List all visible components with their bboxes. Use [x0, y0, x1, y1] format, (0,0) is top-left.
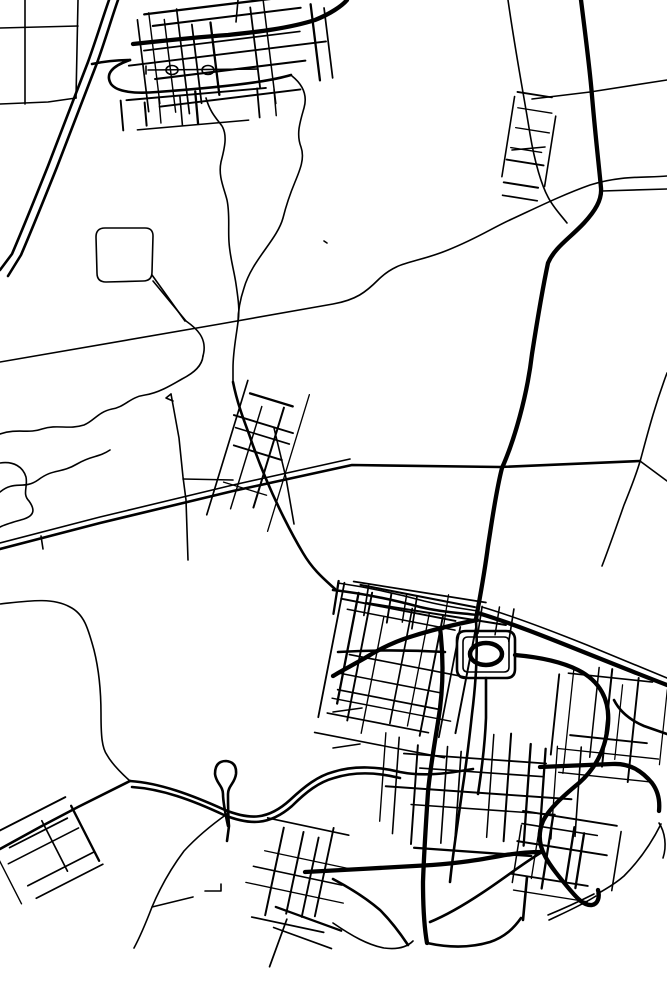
- road-path-med: [233, 382, 335, 589]
- road-path-thin: [333, 744, 360, 748]
- road-path-thin: [152, 275, 185, 321]
- cluster-street: [392, 737, 399, 833]
- road-path-thin: [338, 583, 478, 611]
- cluster-street: [566, 827, 575, 882]
- road-path-thin: [238, 76, 305, 322]
- pond: [470, 643, 502, 665]
- cluster-street: [518, 108, 552, 113]
- cluster-street: [265, 851, 355, 870]
- street-fabric-layer: [0, 0, 667, 986]
- cluster-street: [71, 806, 99, 861]
- cluster-street: [286, 832, 303, 914]
- cluster-street: [121, 101, 124, 131]
- road-path-thin: [0, 98, 76, 104]
- road-path-med: [215, 761, 236, 841]
- road-path-thin: [183, 479, 233, 480]
- cluster-street: [563, 667, 574, 773]
- road-path-med: [338, 651, 445, 653]
- road-path-thin: [532, 80, 667, 99]
- road-path-thin: [0, 450, 110, 492]
- cluster-street: [545, 116, 556, 186]
- street-cluster: [499, 92, 558, 202]
- cluster-street: [318, 583, 344, 717]
- cluster-street: [551, 674, 559, 754]
- cluster-street: [177, 9, 190, 114]
- cluster-street: [327, 713, 428, 733]
- road-path-thick: [423, 628, 442, 943]
- street-cluster: [123, 0, 335, 121]
- cluster-street: [502, 97, 515, 177]
- cluster-street: [575, 833, 584, 888]
- road-path-thin: [148, 69, 258, 70]
- cluster-street: [575, 747, 581, 836]
- road-path-thin: [640, 461, 667, 481]
- map-poster: [0, 0, 667, 1000]
- road-path-med: [0, 461, 640, 549]
- map-canvas: [0, 0, 667, 1000]
- cluster-street: [441, 747, 448, 844]
- road-path-thin: [0, 459, 350, 543]
- road-path-thin: [602, 373, 667, 566]
- cluster-street: [524, 744, 531, 846]
- cluster-street: [270, 919, 287, 966]
- road-path-thin: [134, 814, 227, 948]
- cluster-street: [276, 907, 341, 931]
- road-path-med: [0, 0, 109, 270]
- cluster-street: [411, 745, 418, 844]
- cluster-street: [504, 734, 512, 842]
- cluster-street: [558, 749, 659, 760]
- road-path-thin: [0, 356, 203, 434]
- road-path-thin: [0, 601, 130, 781]
- road-path-thin: [0, 26, 78, 28]
- road-path-med: [333, 879, 408, 945]
- cluster-street: [324, 8, 333, 78]
- cluster-street: [250, 393, 293, 406]
- road-path-med: [478, 678, 486, 794]
- cluster-street: [615, 685, 623, 760]
- cluster-street: [145, 103, 147, 126]
- cluster-street: [559, 772, 651, 782]
- road-path-thin: [602, 189, 667, 191]
- road-path-thin: [324, 241, 327, 243]
- road-path-thin: [597, 824, 661, 894]
- cluster-street: [333, 581, 338, 614]
- road-path-thin: [76, 0, 78, 98]
- cluster-street: [315, 732, 445, 757]
- cluster-street: [503, 195, 538, 200]
- road-path-med: [0, 781, 130, 849]
- road-path-thin: [659, 823, 665, 858]
- cluster-street: [268, 818, 349, 835]
- cluster-street: [507, 160, 544, 166]
- cluster-street: [250, 7, 260, 87]
- cluster-street: [257, 88, 260, 117]
- road-path-med: [614, 700, 667, 734]
- road-path-thin: [333, 708, 362, 712]
- road-path-thin: [152, 897, 193, 907]
- cluster-street: [8, 828, 78, 864]
- road-layer-med: [0, 0, 667, 947]
- cluster-street: [404, 754, 546, 764]
- cluster-street: [246, 882, 343, 903]
- cluster-street: [455, 627, 476, 733]
- street-cluster: [256, 907, 341, 986]
- cluster-street: [487, 734, 494, 837]
- cluster-street: [0, 849, 22, 904]
- cluster-street: [268, 395, 310, 532]
- road-path-thin: [96, 228, 153, 282]
- cluster-street: [137, 120, 248, 130]
- road-layer-thin: [0, 0, 667, 949]
- cluster-street: [659, 690, 667, 765]
- road-path-thin: [0, 463, 33, 527]
- road-path-med: [427, 918, 521, 947]
- cluster-street: [10, 818, 68, 847]
- road-path-thin: [171, 394, 188, 560]
- road-path-thin: [153, 281, 204, 356]
- road-path-med: [523, 877, 527, 920]
- cluster-street: [195, 91, 198, 124]
- cluster-street: [570, 735, 647, 743]
- cluster-street: [338, 690, 439, 710]
- cluster-street: [522, 824, 597, 836]
- road-path-thin: [0, 176, 667, 362]
- street-cluster: [239, 812, 362, 935]
- cluster-street: [36, 864, 103, 898]
- cluster-street: [523, 811, 617, 826]
- road-path-med: [130, 767, 473, 816]
- cluster-street: [504, 182, 538, 187]
- cluster-street: [516, 128, 550, 133]
- cluster-street: [274, 928, 332, 949]
- cluster-street: [180, 96, 183, 125]
- road-layer-thick: [133, 0, 667, 943]
- road-path-thin: [205, 884, 221, 891]
- cluster-street: [210, 22, 219, 94]
- street-cluster: [0, 796, 103, 906]
- cluster-street: [0, 797, 65, 835]
- road-path-thin: [206, 98, 239, 382]
